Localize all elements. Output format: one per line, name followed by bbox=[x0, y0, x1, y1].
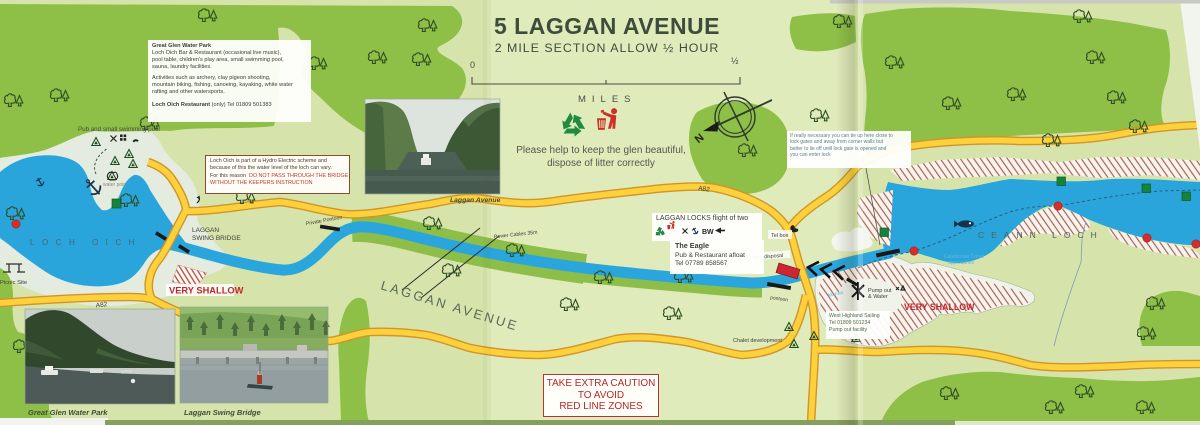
svg-text:½: ½ bbox=[731, 56, 739, 66]
svg-text:Laggan Swing Bridge: Laggan Swing Bridge bbox=[184, 408, 261, 417]
svg-text:VERY SHALLOW: VERY SHALLOW bbox=[904, 302, 975, 312]
svg-text:Laggan Avenue: Laggan Avenue bbox=[450, 197, 501, 204]
svg-text:0: 0 bbox=[470, 60, 475, 70]
svg-text:Pub and small swimming pool: Pub and small swimming pool bbox=[78, 126, 160, 133]
svg-text:SWING BRIDGE: SWING BRIDGE bbox=[192, 235, 241, 242]
svg-text:& Water: & Water bbox=[868, 294, 888, 300]
svg-text:LOCH OICH: LOCH OICH bbox=[30, 238, 142, 247]
svg-text:MILES: MILES bbox=[578, 94, 637, 105]
svg-text:Picnic Site: Picnic Site bbox=[0, 280, 27, 286]
svg-text:water point: water point bbox=[103, 182, 128, 188]
svg-text:Tel box: Tel box bbox=[771, 233, 789, 239]
svg-text:approaches: approaches bbox=[948, 260, 975, 266]
svg-text:CEANN LOCH: CEANN LOCH bbox=[978, 230, 1104, 240]
svg-text:Great Glen Water Park: Great Glen Water Park bbox=[28, 408, 108, 417]
svg-text:Chalet development: Chalet development bbox=[733, 338, 782, 344]
svg-text:LAGGAN: LAGGAN bbox=[192, 227, 219, 234]
svg-text:VERY SHALLOW: VERY SHALLOW bbox=[169, 286, 244, 296]
